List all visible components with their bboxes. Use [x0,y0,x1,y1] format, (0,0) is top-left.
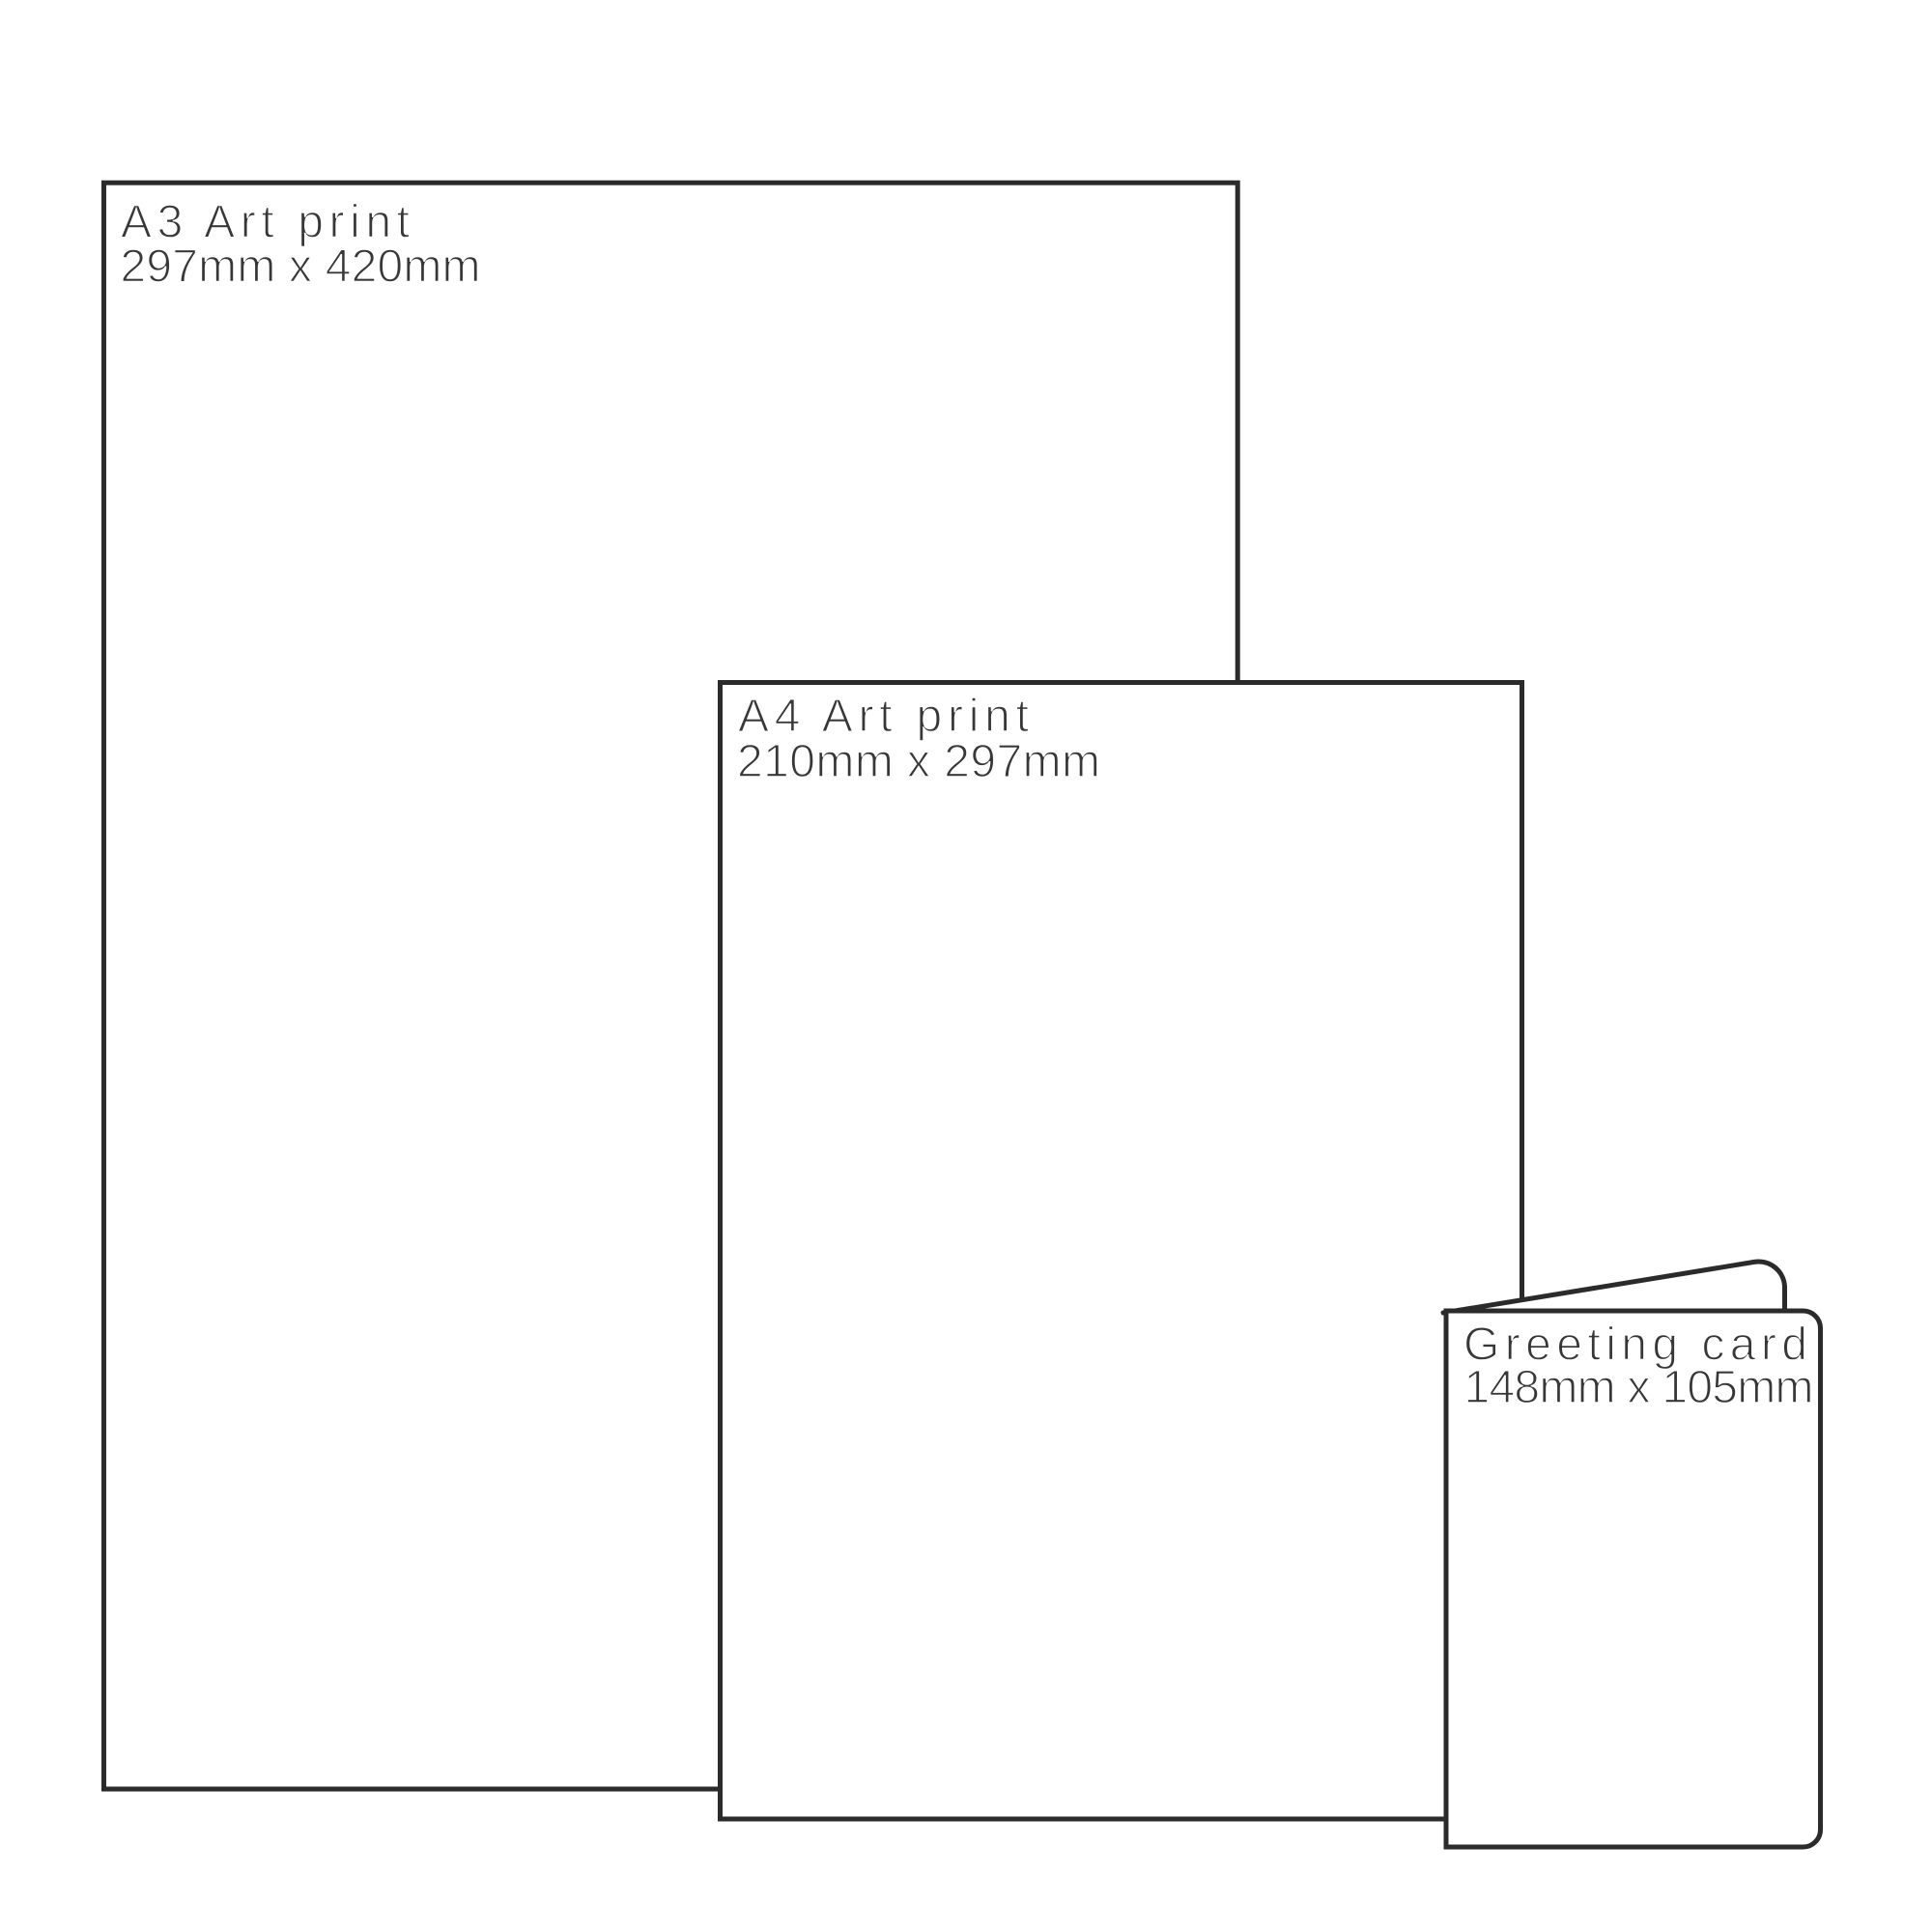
svg-text:148mm x 105mm: 148mm x 105mm [1464,1362,1814,1413]
svg-text:A4 Art print: A4 Art print [738,691,1029,742]
svg-text:210mm x 297mm: 210mm x 297mm [737,736,1100,787]
svg-text:297mm x 420mm: 297mm x 420mm [121,241,481,292]
